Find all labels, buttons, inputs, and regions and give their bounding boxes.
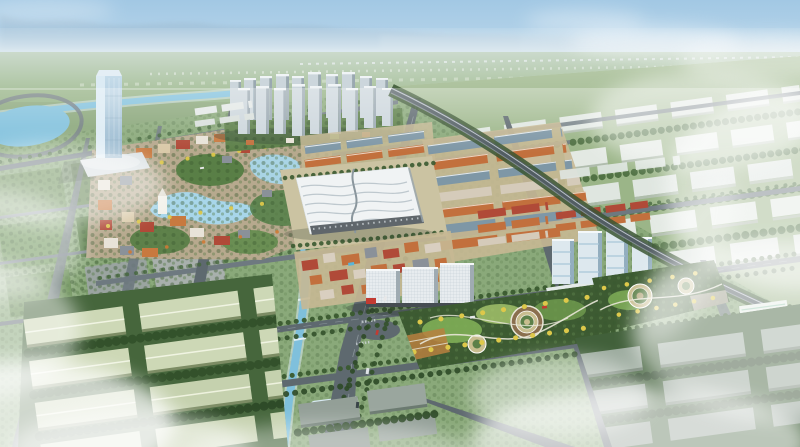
masterplan-rendering [0,0,800,447]
office-tower [440,264,470,304]
office-towers [366,263,474,307]
office-tower [402,268,434,306]
masterplan-scene [0,0,800,447]
tower-crown [96,70,122,76]
church-tower [158,196,167,214]
storefront-sign [366,298,376,304]
